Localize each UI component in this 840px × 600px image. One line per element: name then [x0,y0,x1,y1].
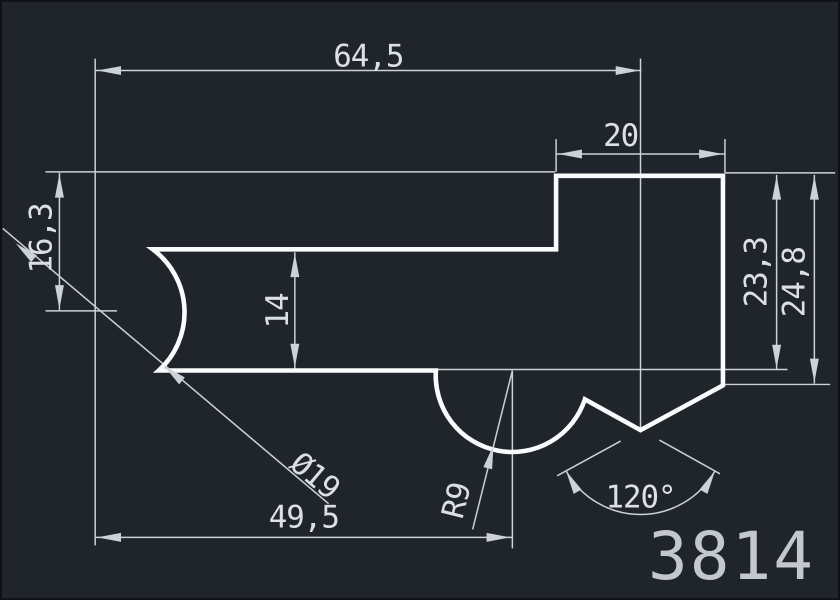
part-outline [153,176,723,452]
cad-drawing-canvas[interactable]: 64,52016,31423,324,8Ø1949,5R9120° [2,2,838,598]
cad-drawing-viewport[interactable]: 64,52016,31423,324,8Ø1949,5R9120° 3814 [0,0,840,600]
dim-64-5-arrow-right [616,66,640,75]
dim-24-8-label: 24,8 [776,247,812,317]
dim-14-arrow-bottom [290,344,299,368]
dim-120-arrow-right [700,471,715,494]
dim-16-3-label: 16,3 [24,203,60,273]
dim-64-5-label: 64,5 [333,39,403,75]
dim-14-label: 14 [260,293,296,329]
dim-23-3-arrow-bottom [772,345,781,369]
dim-20-arrow-left [558,150,582,159]
dim-120-label: 120° [605,480,675,516]
ext-line-angle-right [659,440,720,474]
dim-dia19-label: Ø19 [283,445,346,506]
dim-49-5-label: 49,5 [269,500,339,536]
dim-23-3-label: 23,3 [739,237,775,307]
dim-20-label: 20 [603,118,638,154]
dim-120-arrow-left [566,471,581,494]
dim-49-5-arrow-left [97,533,121,542]
dim-16-3-arrow-top [55,174,64,198]
dim-20-arrow-right [699,150,723,159]
part-number: 3814 [648,522,838,592]
dim-49-5-arrow-right [487,533,511,542]
dim-23-3-arrow-top [772,176,781,200]
dim-16-3-arrow-bottom [55,285,64,309]
dim-24-8-arrow-bottom [810,359,819,383]
dim-64-5-arrow-left [97,66,121,75]
dim-24-8-arrow-top [810,176,819,200]
dim-14-arrow-top [290,253,299,277]
leader-r9-label: R9 [435,479,478,522]
